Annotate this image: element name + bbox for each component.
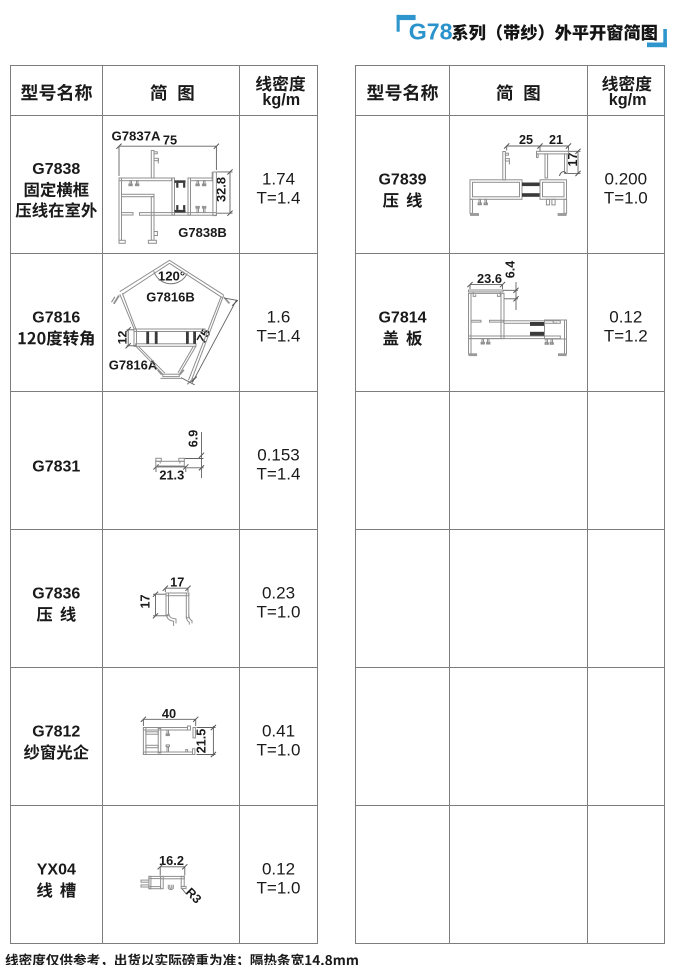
- svg-text:21.3: 21.3: [159, 467, 184, 482]
- svg-text:23.6: 23.6: [477, 271, 502, 286]
- svg-text:6.4: 6.4: [504, 261, 518, 279]
- svg-text:G78: G78: [409, 19, 453, 45]
- svg-text:17: 17: [170, 575, 184, 590]
- svg-text:G7837A: G7837A: [111, 129, 161, 144]
- svg-text:G7816: G7816: [32, 309, 80, 326]
- svg-text:T=1.0: T=1.0: [257, 603, 301, 622]
- svg-text:75: 75: [163, 133, 177, 148]
- svg-text:YX04: YX04: [37, 861, 76, 878]
- svg-text:G7814: G7814: [378, 309, 426, 326]
- svg-text:1.74: 1.74: [262, 170, 295, 189]
- svg-text:G7816B: G7816B: [146, 290, 194, 305]
- svg-text:G7816A: G7816A: [109, 358, 158, 373]
- svg-text:T=1.4: T=1.4: [257, 189, 301, 208]
- svg-text:G7838B: G7838B: [178, 225, 226, 240]
- svg-text:0.200: 0.200: [605, 170, 648, 189]
- svg-text:6.9: 6.9: [187, 430, 201, 448]
- svg-text:25: 25: [519, 133, 533, 147]
- svg-text:21.5: 21.5: [195, 729, 209, 754]
- svg-text:0.153: 0.153: [257, 446, 300, 465]
- svg-text:16.2: 16.2: [159, 853, 184, 868]
- svg-text:G7831: G7831: [32, 459, 80, 476]
- svg-text:T=1.0: T=1.0: [257, 741, 301, 760]
- svg-text:0.41: 0.41: [262, 722, 295, 741]
- svg-text:G7839: G7839: [378, 171, 426, 188]
- svg-text:12: 12: [116, 331, 130, 345]
- svg-text:0.12: 0.12: [262, 860, 295, 879]
- svg-text:T=1.4: T=1.4: [257, 465, 301, 484]
- svg-text:T=1.0: T=1.0: [257, 879, 301, 898]
- svg-text:T=1.2: T=1.2: [604, 327, 648, 346]
- svg-text:kg/m: kg/m: [262, 91, 300, 109]
- svg-text:21: 21: [549, 133, 563, 147]
- svg-text:G7836: G7836: [32, 585, 80, 602]
- svg-text:17: 17: [138, 594, 152, 608]
- svg-text:T=1.0: T=1.0: [604, 189, 648, 208]
- svg-text:T=1.4: T=1.4: [257, 327, 301, 346]
- svg-text:G7838: G7838: [32, 161, 80, 178]
- svg-text:1.6: 1.6: [267, 308, 291, 327]
- svg-text:40: 40: [162, 706, 176, 721]
- svg-text:kg/m: kg/m: [609, 91, 647, 109]
- svg-text:G7812: G7812: [32, 723, 80, 740]
- svg-text:32.8: 32.8: [213, 177, 228, 202]
- svg-text:0.12: 0.12: [609, 308, 642, 327]
- svg-text:0.23: 0.23: [262, 584, 295, 603]
